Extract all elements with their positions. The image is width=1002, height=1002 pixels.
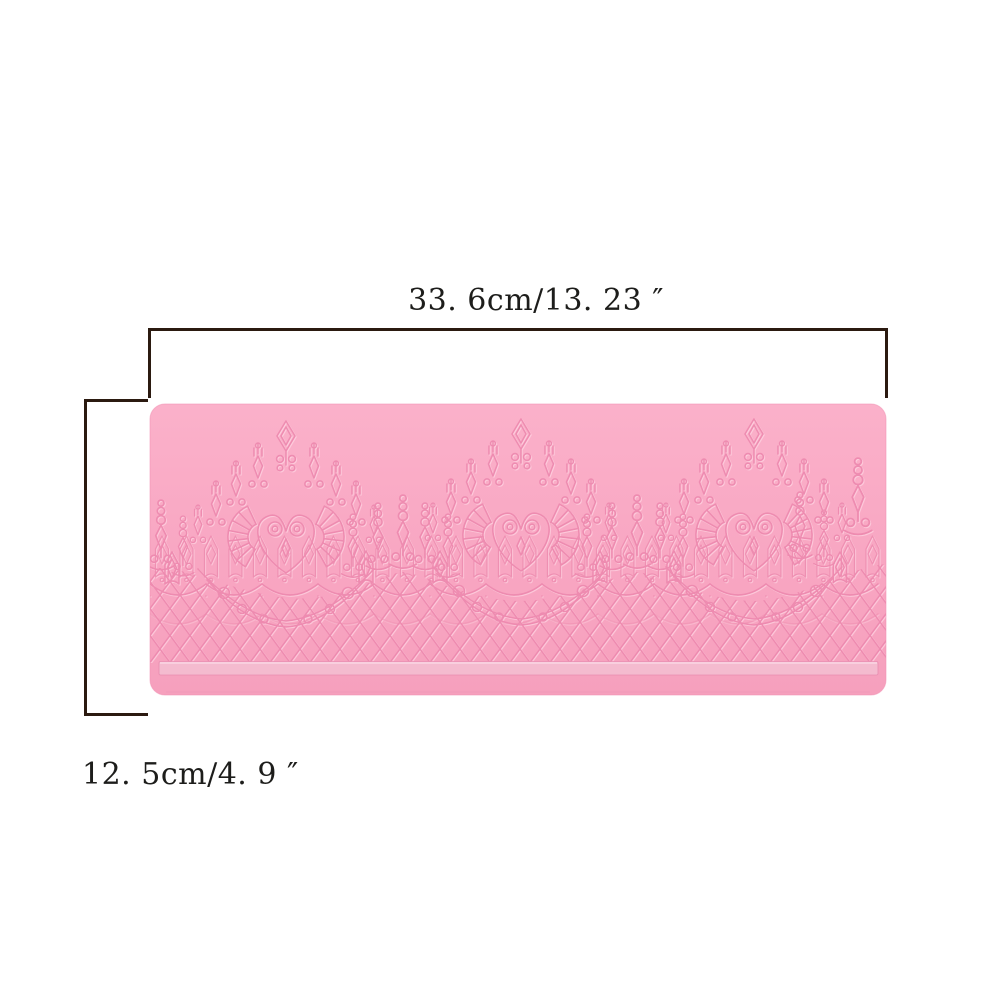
arch-band [150, 533, 886, 585]
lace-mat-image [0, 0, 1002, 1002]
product-photo: 33. 6cm/13. 23 ″ 12. 5cm/4. 9 ″ [0, 0, 1002, 1002]
bottom-bar [159, 662, 878, 676]
